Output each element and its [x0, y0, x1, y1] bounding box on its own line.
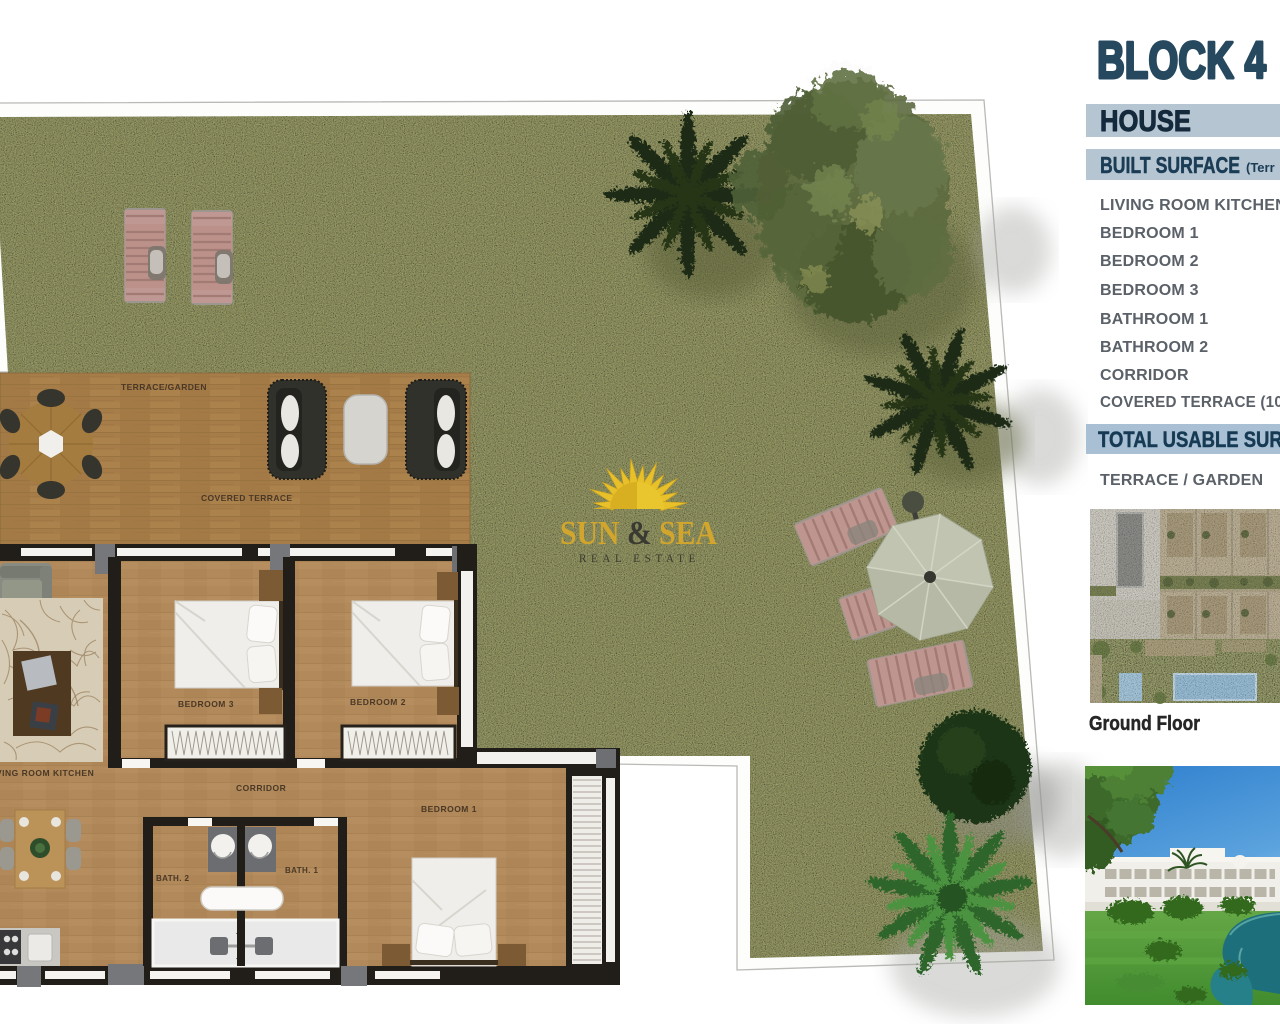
svg-text:CORRIDOR: CORRIDOR	[1100, 367, 1189, 384]
svg-text:COVERED TERRACE (10: COVERED TERRACE (10	[1100, 394, 1280, 411]
svg-text:TERRACE / GARDEN: TERRACE / GARDEN	[1100, 472, 1263, 489]
svg-text:HOUSE: HOUSE	[1100, 105, 1191, 138]
svg-text:BATH. 2: BATH. 2	[156, 874, 189, 883]
svg-text:BUILT SURFACE: BUILT SURFACE	[1100, 152, 1240, 178]
svg-text:BEDROOM 1: BEDROOM 1	[421, 804, 477, 814]
svg-text:TERRACE/GARDEN: TERRACE/GARDEN	[121, 382, 207, 392]
svg-text:LIVING ROOM KITCHEN: LIVING ROOM KITCHEN	[1100, 197, 1280, 214]
svg-text:BATH. 1: BATH. 1	[285, 866, 318, 875]
svg-text:BEDROOM 1: BEDROOM 1	[1100, 225, 1199, 242]
svg-text:BATHROOM 2: BATHROOM 2	[1100, 339, 1208, 356]
svg-text:BEDROOM 2: BEDROOM 2	[1100, 253, 1199, 270]
svg-text:REAL ESTATE: REAL ESTATE	[579, 551, 700, 565]
svg-text:COVERED TERRACE: COVERED TERRACE	[201, 493, 292, 503]
svg-text:CORRIDOR: CORRIDOR	[236, 783, 286, 793]
svg-text:SUN & SEA: SUN & SEA	[560, 515, 717, 552]
svg-text:BEDROOM 3: BEDROOM 3	[178, 699, 234, 709]
svg-text:VING ROOM KITCHEN: VING ROOM KITCHEN	[0, 768, 94, 778]
svg-text:BEDROOM 2: BEDROOM 2	[350, 697, 406, 707]
svg-text:BEDROOM 3: BEDROOM 3	[1100, 282, 1199, 299]
svg-text:TOTAL USABLE SURF: TOTAL USABLE SURF	[1098, 427, 1280, 452]
svg-text:(Terr: (Terr	[1246, 160, 1275, 175]
svg-text:BLOCK 4: BLOCK 4	[1097, 32, 1266, 90]
svg-text:BATHROOM 1: BATHROOM 1	[1100, 311, 1208, 328]
svg-text:Ground Floor: Ground Floor	[1089, 713, 1200, 735]
